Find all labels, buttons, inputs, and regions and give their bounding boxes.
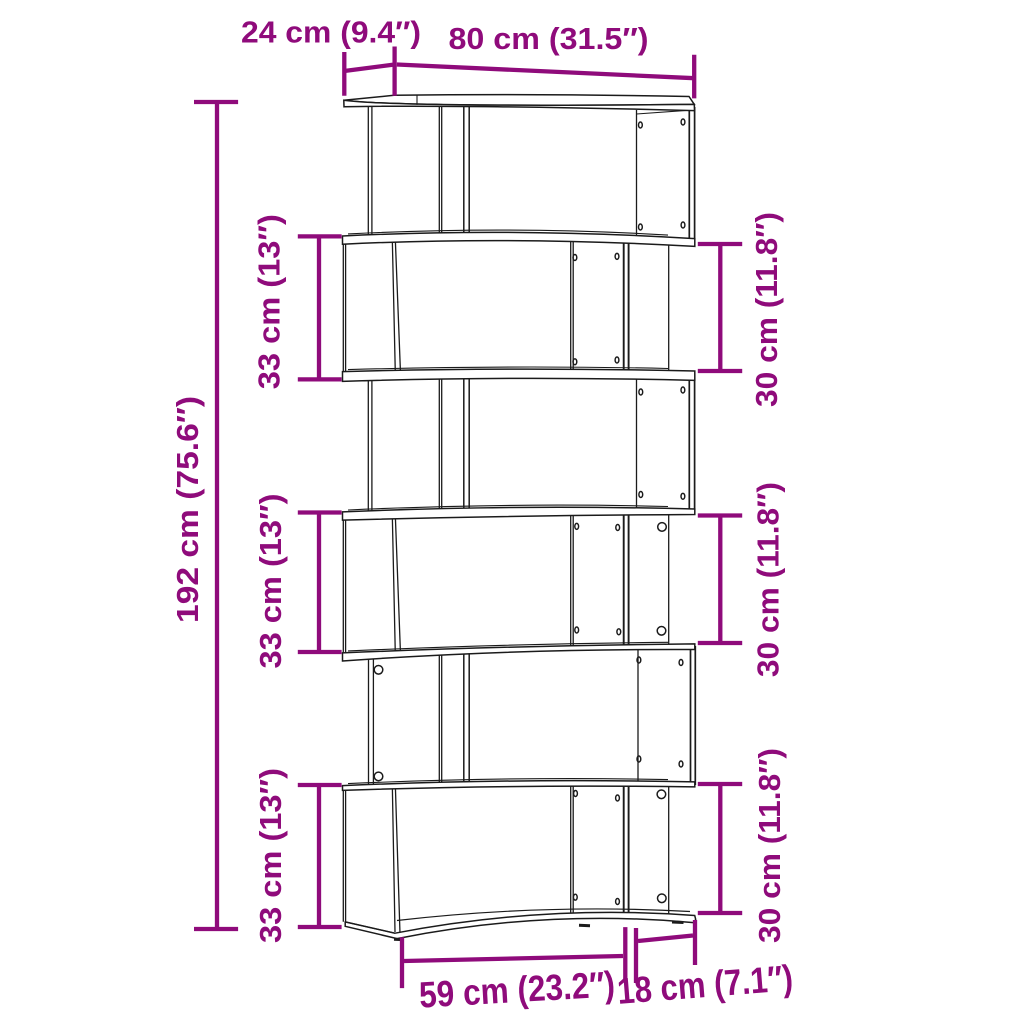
svg-text:30 cm (11.8″): 30 cm (11.8″) [750,482,785,677]
svg-text:30 cm (11.8″): 30 cm (11.8″) [752,748,787,943]
svg-text:24 cm (9.4″): 24 cm (9.4″) [241,15,421,50]
svg-text:192 cm (75.6″): 192 cm (75.6″) [170,396,205,623]
svg-text:33 cm (13″): 33 cm (13″) [253,494,288,669]
svg-text:33 cm (13″): 33 cm (13″) [252,214,287,389]
svg-text:30 cm (11.8″): 30 cm (11.8″) [749,212,784,407]
svg-text:33 cm (13″): 33 cm (13″) [253,768,288,943]
svg-text:80 cm (31.5″): 80 cm (31.5″) [449,21,649,56]
